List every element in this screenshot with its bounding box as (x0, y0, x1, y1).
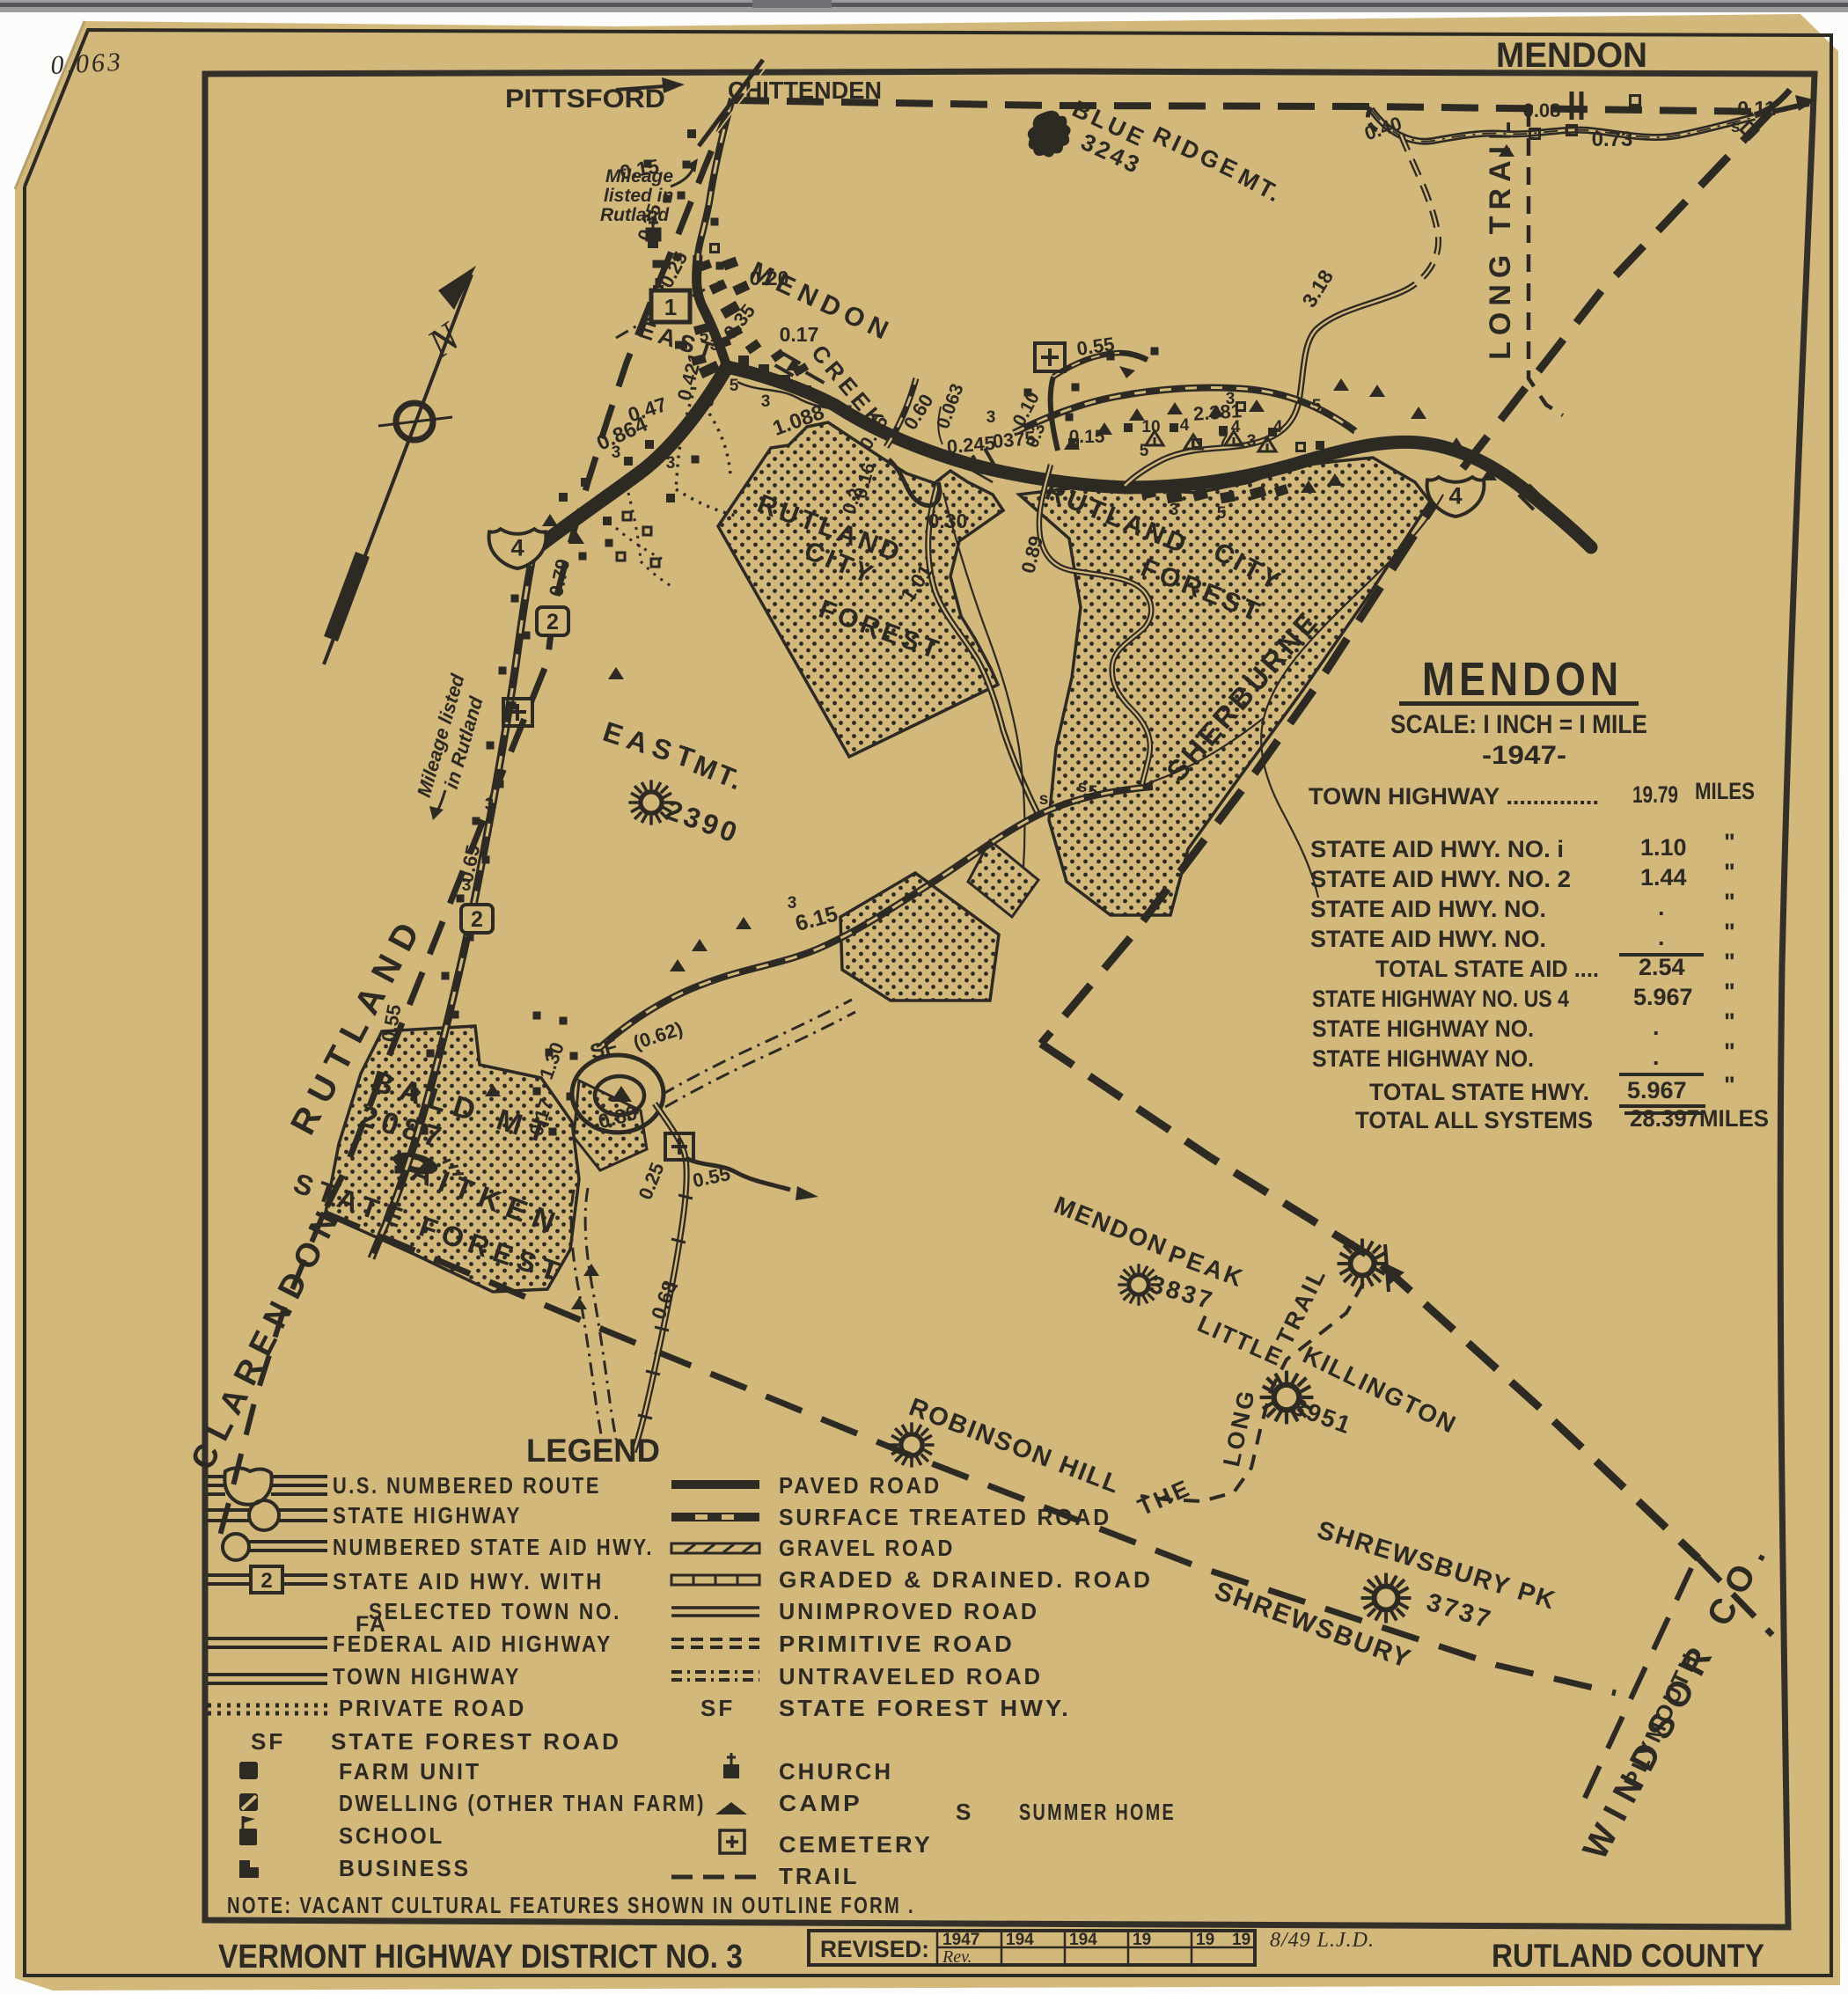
svg-text:": " (1724, 829, 1735, 855)
svg-text:.: . (1653, 1044, 1660, 1070)
svg-text:TOTAL ALL SYSTEMS: TOTAL ALL SYSTEMS (1355, 1107, 1593, 1133)
svg-text:0.08: 0.08 (1523, 99, 1561, 121)
svg-text:3: 3 (1170, 501, 1179, 519)
svg-text:SF: SF (700, 1695, 735, 1721)
svg-text:.: . (1658, 924, 1665, 950)
svg-text:3: 3 (1247, 432, 1257, 451)
svg-text:S: S (956, 1799, 973, 1825)
svg-text:3: 3 (485, 795, 495, 814)
svg-text:RUTLAND COUNTY: RUTLAND COUNTY (1492, 1938, 1764, 1974)
svg-text:STATE AID HWY. NO. 2: STATE AID HWY. NO. 2 (1310, 866, 1571, 892)
svg-text:PRIMITIVE ROAD: PRIMITIVE ROAD (779, 1631, 1015, 1657)
svg-text:5: 5 (705, 392, 715, 411)
svg-text:STATE HIGHWAY NO.: STATE HIGHWAY NO. (1312, 1015, 1534, 1042)
svg-text:STATE AID HWY. NO.: STATE AID HWY. NO. (1310, 896, 1546, 922)
svg-text:5.967: 5.967 (1627, 1077, 1687, 1103)
svg-text:19: 19 (1196, 1931, 1214, 1949)
svg-text:8/49 L.J.D.: 8/49 L.J.D. (1270, 1929, 1375, 1952)
svg-text:.: . (1653, 1014, 1660, 1040)
svg-text:s: s (1731, 118, 1741, 136)
svg-text:CEMETERY: CEMETERY (779, 1831, 933, 1858)
svg-text:0.73: 0.73 (1592, 128, 1633, 151)
svg-text:1947: 1947 (942, 1931, 979, 1949)
svg-text:19: 19 (1133, 1931, 1151, 1949)
svg-text:CAMP: CAMP (779, 1790, 862, 1816)
svg-text:Mileage: Mileage (605, 166, 673, 187)
svg-text:1.44: 1.44 (1640, 864, 1687, 891)
svg-text:0,063: 0,063 (50, 48, 124, 80)
svg-text:MENDON: MENDON (1422, 653, 1623, 706)
svg-text:CHITTENDEN: CHITTENDEN (728, 77, 882, 104)
svg-text:194: 194 (1069, 1931, 1097, 1949)
svg-text:SCALE: I INCH = I MILE: SCALE: I INCH = I MILE (1390, 710, 1647, 739)
svg-text:1: 1 (664, 294, 677, 320)
svg-text:": " (1724, 949, 1735, 975)
svg-text:TRAIL: TRAIL (779, 1863, 860, 1889)
svg-text:CHURCH: CHURCH (779, 1758, 893, 1785)
svg-text:": " (1724, 889, 1735, 915)
svg-text:3: 3 (462, 876, 472, 895)
svg-text:Rev.: Rev. (942, 1947, 972, 1967)
svg-text:VERMONT HIGHWAY DISTRICT NO: VERMONT HIGHWAY DISTRICT NO. 3 (218, 1939, 743, 1976)
svg-text:5: 5 (1217, 504, 1227, 523)
svg-text:STATE HIGHWAY: STATE HIGHWAY (333, 1502, 522, 1528)
svg-text:.: . (1658, 894, 1665, 920)
svg-text:FARM UNIT: FARM UNIT (339, 1758, 481, 1785)
svg-text:REVISED:: REVISED: (820, 1936, 929, 1962)
svg-text:BUSINESS: BUSINESS (339, 1855, 471, 1881)
svg-text:3: 3 (788, 894, 797, 913)
svg-text:2: 2 (260, 1569, 272, 1593)
svg-text:Rutland: Rutland (600, 205, 670, 225)
svg-text:SELECTED TOWN NO.: SELECTED TOWN NO. (369, 1598, 621, 1624)
svg-text:TOTAL STATE HWY.: TOTAL STATE HWY. (1369, 1079, 1589, 1105)
svg-text:PRIVATE ROAD: PRIVATE ROAD (339, 1695, 526, 1721)
svg-text:TOWN HIGHWAY ..............: TOWN HIGHWAY .............. (1309, 783, 1599, 810)
svg-text:": " (1724, 1038, 1735, 1065)
svg-text:5: 5 (730, 377, 739, 395)
svg-text:UNTRAVELED ROAD: UNTRAVELED ROAD (779, 1663, 1043, 1690)
svg-text:UNIMPROVED ROAD: UNIMPROVED ROAD (779, 1598, 1039, 1624)
svg-text:STATE HIGHWAY NO. US 4: STATE HIGHWAY NO. US 4 (1312, 986, 1569, 1012)
svg-text:5.967: 5.967 (1633, 984, 1693, 1010)
svg-text:194: 194 (1006, 1931, 1034, 1949)
svg-text:LONG TRAIL: LONG TRAIL (1484, 115, 1517, 360)
svg-text:SURFACE TREATED ROAD: SURFACE TREATED ROAD (779, 1504, 1111, 1530)
svg-text:": " (1724, 859, 1735, 885)
svg-text:5: 5 (1312, 397, 1322, 415)
svg-text:STATE HIGHWAY NO.: STATE HIGHWAY NO. (1312, 1045, 1534, 1072)
svg-text:28.397MILES: 28.397MILES (1630, 1105, 1769, 1132)
svg-text:3: 3 (666, 454, 676, 473)
svg-text:0.30: 0.30 (928, 509, 968, 532)
svg-text:3: 3 (612, 444, 621, 462)
svg-text:3: 3 (761, 392, 771, 411)
svg-text:STATE AID HWY. NO.: STATE AID HWY. NO. (1310, 926, 1546, 952)
svg-text:TOTAL STATE AID ....: TOTAL STATE AID .... (1375, 956, 1599, 982)
svg-text:GRAVEL ROAD: GRAVEL ROAD (779, 1535, 955, 1561)
svg-text:": " (1724, 979, 1735, 1005)
svg-text:STATE FOREST ROAD: STATE FOREST ROAD (331, 1728, 621, 1755)
svg-text:1.10: 1.10 (1640, 834, 1687, 861)
svg-text:NOTE: VACANT CULTURAL FEATU: NOTE: VACANT CULTURAL FEATURES SHOWN IN … (227, 1892, 915, 1918)
svg-text:4: 4 (1448, 482, 1462, 509)
svg-text:": " (1724, 1072, 1735, 1098)
svg-text:2: 2 (546, 610, 559, 634)
svg-text:5: 5 (1089, 783, 1098, 802)
svg-text:SUMMER HOME: SUMMER HOME (1019, 1799, 1176, 1825)
svg-text:0.20: 0.20 (750, 267, 789, 290)
svg-text:s: s (1039, 790, 1049, 809)
svg-text:SF: SF (251, 1728, 285, 1755)
svg-text:2: 2 (471, 907, 483, 932)
svg-text:listed in: listed in (604, 186, 673, 206)
svg-text:": " (1724, 919, 1735, 945)
svg-text:STATE AID HWY. NO. i: STATE AID HWY. NO. i (1310, 836, 1564, 862)
svg-text:4: 4 (1180, 416, 1190, 435)
svg-text:19.79: 19.79 (1632, 781, 1678, 808)
svg-text:MILES: MILES (1695, 778, 1755, 804)
svg-text:SCHOOL: SCHOOL (339, 1822, 444, 1849)
svg-text:0.11: 0.11 (1737, 97, 1776, 120)
svg-text:3: 3 (986, 408, 996, 427)
svg-text:TOWN HIGHWAY: TOWN HIGHWAY (333, 1663, 521, 1690)
svg-text:STATE AID HWY. WITH: STATE AID HWY. WITH (333, 1568, 604, 1594)
svg-text:NUMBERED STATE AID HWY.: NUMBERED STATE AID HWY. (333, 1534, 654, 1560)
svg-text:MENDON: MENDON (1496, 36, 1647, 75)
svg-text:FA: FA (356, 1612, 387, 1637)
svg-text:PAVED ROAD: PAVED ROAD (779, 1472, 942, 1499)
svg-text:3: 3 (1226, 390, 1236, 408)
svg-text:s: s (1078, 778, 1088, 796)
svg-text:0.17: 0.17 (780, 323, 819, 346)
svg-text:-1947-: -1947- (1482, 741, 1566, 770)
svg-text:U.S. NUMBERED ROUTE: U.S. NUMBERED ROUTE (333, 1472, 601, 1499)
svg-text:LEGEND: LEGEND (526, 1433, 660, 1469)
svg-text:4: 4 (510, 534, 524, 561)
svg-text:19: 19 (1232, 1931, 1250, 1949)
svg-text:2.54: 2.54 (1639, 954, 1685, 980)
svg-text:GRADED & DRAINED. ROAD: GRADED & DRAINED. ROAD (779, 1566, 1153, 1593)
svg-text:DWELLING (OTHER THAN FARM): DWELLING (OTHER THAN FARM) (339, 1790, 706, 1816)
svg-text:": " (1724, 1008, 1735, 1035)
svg-text:STATE FOREST HWY.: STATE FOREST HWY. (779, 1695, 1071, 1721)
